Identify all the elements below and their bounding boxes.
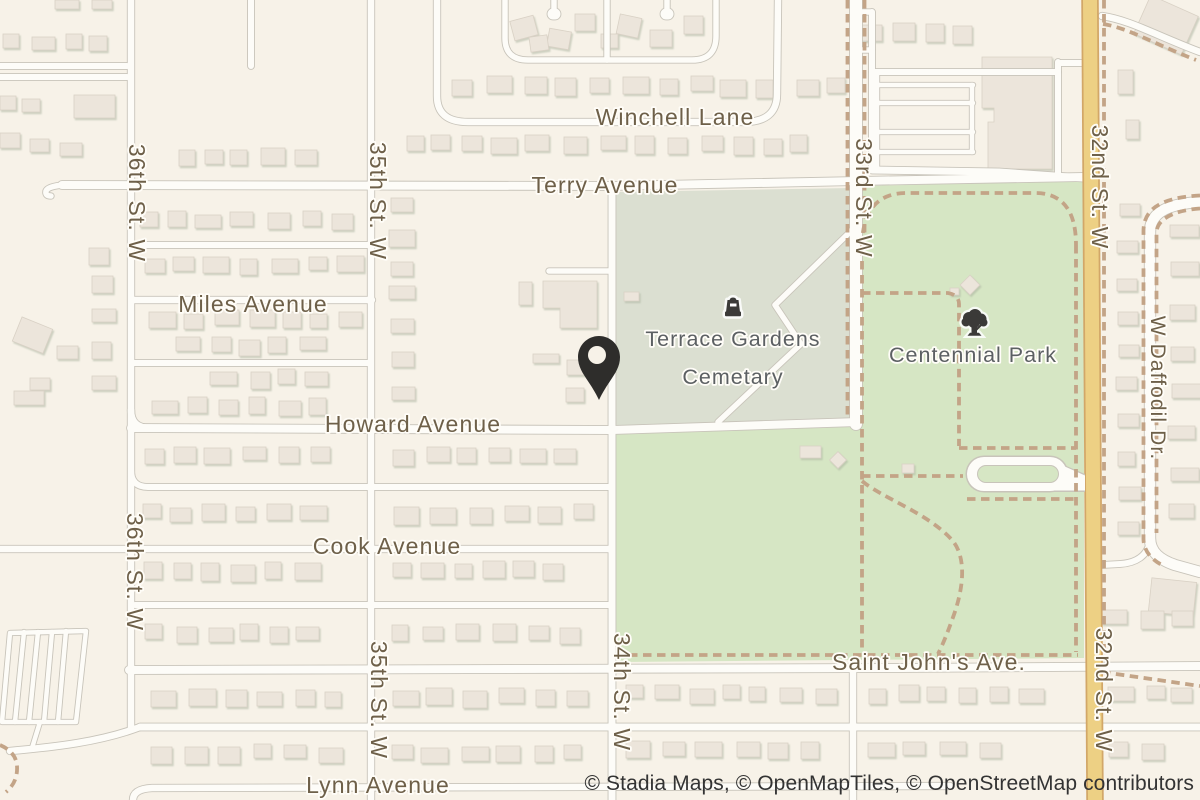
svg-text:32nd St. W: 32nd St. W — [1091, 628, 1117, 753]
svg-text:36th St. W: 36th St. W — [124, 144, 150, 262]
svg-text:Howard Avenue: Howard Avenue — [325, 411, 501, 437]
svg-text:32nd St. W: 32nd St. W — [1087, 125, 1113, 250]
svg-text:34th St. W: 34th St. W — [609, 633, 635, 751]
svg-text:Terrace Gardens: Terrace Gardens — [645, 327, 820, 351]
svg-text:W Daffodil Dr.: W Daffodil Dr. — [1146, 316, 1169, 461]
svg-text:Centennial Park: Centennial Park — [889, 343, 1057, 367]
svg-text:Cemetary: Cemetary — [682, 365, 783, 389]
svg-text:35th St. W: 35th St. W — [365, 142, 391, 260]
svg-text:35th St. W: 35th St. W — [366, 641, 392, 759]
svg-text:Winchell Lane: Winchell Lane — [596, 104, 755, 130]
svg-text:Lynn Avenue: Lynn Avenue — [306, 772, 450, 798]
svg-text:© Stadia Maps, © OpenMapTiles,: © Stadia Maps, © OpenMapTiles, © OpenStr… — [585, 772, 1194, 795]
svg-text:33rd St. W: 33rd St. W — [851, 138, 877, 258]
svg-text:Cook Avenue: Cook Avenue — [313, 533, 462, 559]
svg-text:Miles Avenue: Miles Avenue — [178, 291, 328, 317]
svg-text:Saint John's Ave.: Saint John's Ave. — [832, 649, 1026, 675]
svg-text:36th St. W: 36th St. W — [122, 513, 148, 631]
svg-text:Terry Avenue: Terry Avenue — [531, 172, 678, 198]
